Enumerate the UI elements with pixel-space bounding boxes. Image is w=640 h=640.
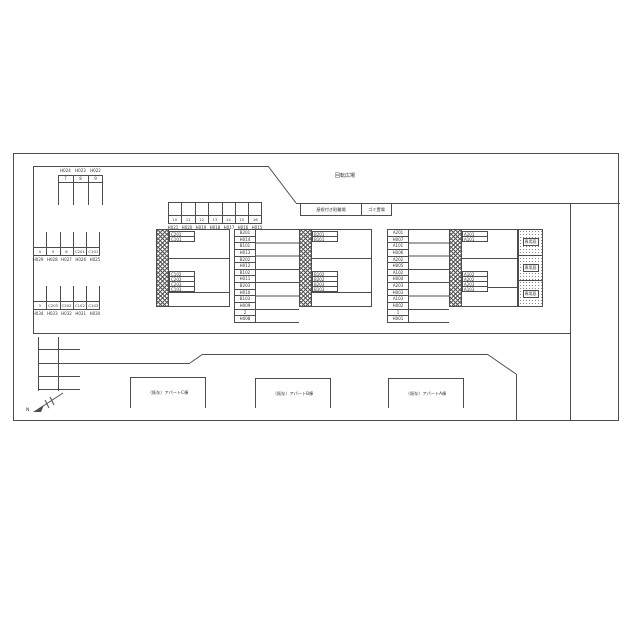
stalls-midleft-labels-item: H026	[74, 257, 88, 263]
stall-column-b-item: H013	[235, 250, 255, 257]
garden-cell: 専用庭	[519, 281, 542, 306]
stalls-topleft-numbers: 789	[58, 175, 103, 183]
stalls-center-numbers-item: 11	[181, 216, 194, 223]
block-a-units-top-item: A101	[462, 236, 488, 242]
stalls-center-numbers-item: 15	[235, 216, 248, 223]
stalls-lowleft-cells-item: C102	[73, 302, 86, 309]
stalls-midleft-cells: 456C201C101	[33, 247, 100, 256]
garden-label: 専用庭	[523, 238, 539, 246]
stall-column-a-item: A102	[388, 270, 408, 277]
block-b-units-top-item: B101	[312, 236, 338, 242]
stalls-center-numbers-item: 14	[222, 216, 235, 223]
block-c-units-top-item: C101	[169, 236, 195, 242]
block-a-hatch-strip	[450, 230, 462, 306]
site-plan-canvas: N 回転広場 屋根付き駐輪場 ゴミ置場 H024H023H022 789 456…	[0, 0, 640, 640]
stall-column-a-item: A101	[388, 243, 408, 250]
stalls-lowleft-labels-item: H032	[59, 311, 73, 317]
stall-column-b: B201H014B101H013B202H012B102H011B203H010…	[234, 229, 256, 323]
stalls-lowleft-grid: 3C203C202C102C103	[33, 286, 100, 310]
block-b-units-lower-item: B103	[312, 286, 338, 292]
stall-column-a-item: A202	[388, 257, 408, 264]
diagonal-lines-layer	[0, 0, 640, 640]
stalls-topleft-numbers-item: 7	[58, 175, 73, 182]
stalls-topleft-labels-item: H022	[88, 168, 103, 174]
stalls-midleft-cells-item: 6	[60, 248, 73, 255]
road-diagonal-right	[487, 354, 516, 374]
stalls-lowleft-labels-item: H030	[88, 311, 102, 317]
block-b-hatch-strip	[300, 230, 312, 306]
stall-column-a-item: A201	[388, 230, 408, 237]
block-c-units-lower-item: C103	[169, 286, 195, 292]
garden-label: 専用庭	[523, 290, 539, 298]
stalls-center-numbers-item: 13	[208, 216, 221, 223]
stalls-topleft-grid: 789	[58, 175, 103, 205]
stall-column-a-item: H003	[388, 290, 408, 297]
garden-cell: 専用庭	[519, 230, 542, 256]
block-c-units-top: C201C101	[169, 231, 195, 241]
stall-column-a-item: H005	[388, 263, 408, 270]
stall-column-b-item: B101	[235, 243, 255, 250]
building-block-c: C201C101 C102C202C203C103	[156, 229, 230, 307]
stall-column-a-item: H006	[388, 250, 408, 257]
stall-column-b-item: B202	[235, 257, 255, 264]
stall-column-a-item: A203	[388, 283, 408, 290]
stall-column-a-item: A103	[388, 296, 408, 303]
existing-building-b: （既存）アパートB棟	[255, 378, 331, 408]
stalls-midleft-labels-item: H025	[88, 257, 102, 263]
existing-building-a: （既存）アパートA棟	[388, 378, 464, 408]
block-a-units-top: A201A101	[462, 231, 488, 241]
stall-column-a-item: H002	[388, 303, 408, 310]
stalls-midleft-labels-item: H027	[59, 257, 73, 263]
stalls-midleft-cells-item: C101	[87, 248, 100, 255]
building-block-b: B201B101 B102B202B203B103	[299, 229, 372, 307]
stalls-center-numbers-item: 12	[195, 216, 208, 223]
bike-shed-box: 屋根付き駐輪場	[300, 203, 362, 216]
stalls-lowleft-labels-item: H031	[74, 311, 88, 317]
stall-column-a-item: H004	[388, 276, 408, 283]
north-label: N	[26, 409, 29, 414]
stalls-midleft-cells-item: 5	[46, 248, 59, 255]
stalls-midleft-labels-item: H028	[45, 257, 59, 263]
plaza-diagonal	[268, 166, 296, 203]
stalls-topleft-labels-item: H023	[73, 168, 88, 174]
stalls-lowleft-cells-item: C202	[60, 302, 73, 309]
rotation-plaza-label: 回転広場	[335, 174, 355, 179]
garden-label: 専用庭	[523, 264, 539, 272]
stall-column-a: A201H007A101H006A202H005A102H004A203H003…	[387, 229, 409, 323]
block-b-units-lower: B102B202B203B103	[312, 271, 338, 291]
stalls-lowleft-cells-item: C103	[87, 302, 100, 309]
stall-column-b-item: H010	[235, 290, 255, 297]
stalls-midleft-labels: H029H028H027H026H025	[31, 257, 102, 263]
stalls-center-numbers-item: 16	[249, 216, 262, 223]
north-arrow-icon	[33, 393, 63, 412]
stalls-topleft-numbers-item: 9	[88, 175, 103, 182]
stalls-midleft-labels-item: H029	[31, 257, 45, 263]
stall-column-b-item: B203	[235, 283, 255, 290]
garbage-box: ゴミ置場	[361, 203, 392, 216]
stalls-topleft-labels: H024H023H022	[58, 168, 103, 174]
block-a-units-lower: A102A202A203A103	[462, 271, 488, 291]
stalls-midleft-cells-item: 4	[33, 248, 46, 255]
stalls-midleft-grid: 456C201C101	[33, 232, 100, 256]
block-c-hatch-strip	[157, 230, 169, 306]
stall-column-a-item: H001	[388, 316, 408, 322]
stall-column-a-item: 1	[388, 310, 408, 317]
stall-column-b-item: H014	[235, 237, 255, 244]
stalls-topleft-numbers-item: 8	[73, 175, 88, 182]
stalls-topleft-labels-item: H024	[58, 168, 73, 174]
stalls-lowleft-labels-item: H034	[31, 311, 45, 317]
stalls-lowleft-cells: 3C203C202C102C103	[33, 301, 100, 310]
block-c-units-lower: C102C202C203C103	[169, 271, 195, 291]
block-a-units-lower-item: A103	[462, 286, 488, 292]
stalls-lowleft-labels: H034H033H032H031H030	[31, 311, 102, 317]
stall-column-a-item: H007	[388, 237, 408, 244]
stalls-lowleft-cells-item: 3	[33, 302, 46, 309]
existing-building-c: （既存）アパートC棟	[130, 377, 206, 408]
stalls-center-numbers: 10111213141516	[168, 215, 262, 224]
stalls-center-grid: 10111213141516	[168, 202, 262, 224]
stall-column-b-item: H008	[235, 316, 255, 322]
stalls-center-numbers-item: 10	[168, 216, 181, 223]
garden-cell: 専用庭	[519, 256, 542, 282]
stall-column-b-item: 2	[235, 310, 255, 317]
block-b-units-top: B201B101	[312, 231, 338, 241]
stalls-midleft-cells-item: C201	[73, 248, 86, 255]
building-block-a: A201A101 A102A202A203A103	[449, 229, 518, 307]
stalls-lowleft-labels-item: H033	[45, 311, 59, 317]
stall-column-b-item: H009	[235, 303, 255, 310]
stall-column-b-item: B102	[235, 270, 255, 277]
private-garden-strip: 専用庭 専用庭 専用庭	[518, 229, 543, 307]
stall-dividers-a	[409, 229, 449, 323]
stall-column-b-item: H012	[235, 263, 255, 270]
stalls-lowleft-cells-item: C203	[46, 302, 59, 309]
stall-column-b-item: H011	[235, 276, 255, 283]
stall-dividers-b	[256, 229, 299, 323]
road-diagonal-left	[190, 354, 203, 363]
stall-column-b-item: B103	[235, 296, 255, 303]
stall-column-b-item: B201	[235, 230, 255, 237]
